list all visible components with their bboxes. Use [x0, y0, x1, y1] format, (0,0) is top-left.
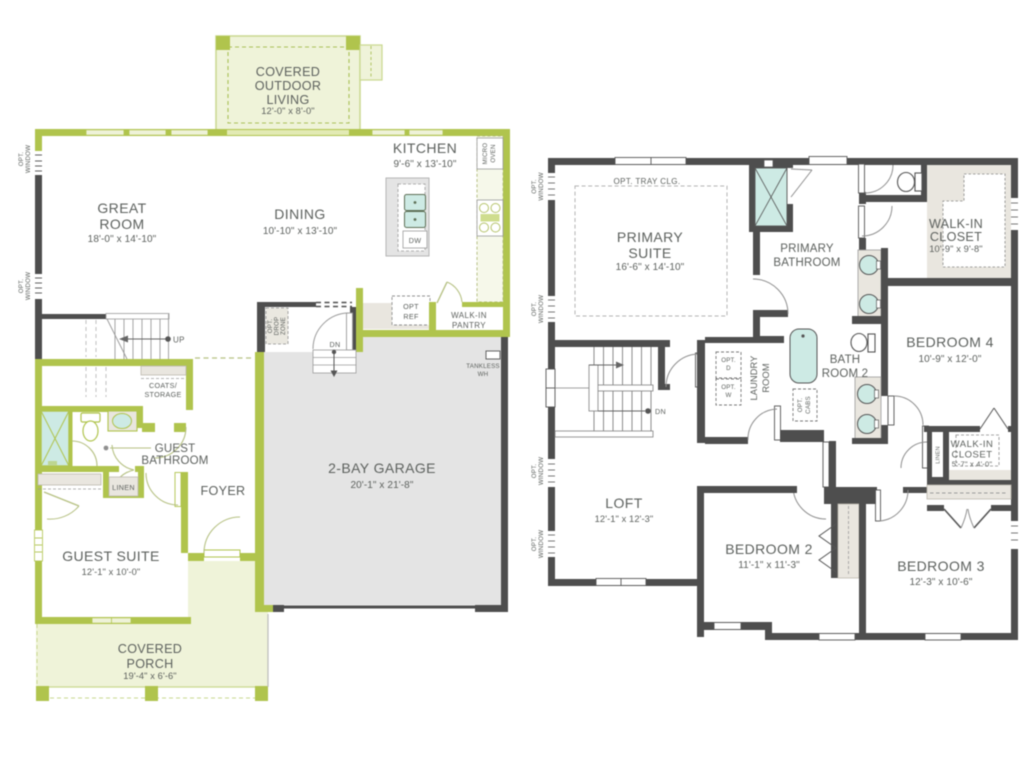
svg-text:OPT.: OPT.: [797, 398, 804, 413]
svg-text:COVERED: COVERED: [118, 642, 182, 656]
svg-text:FOYER: FOYER: [201, 484, 246, 498]
svg-text:COATS/: COATS/: [149, 381, 177, 390]
svg-text:LINEN: LINEN: [112, 483, 135, 492]
svg-text:10'-9" x 9'-8": 10'-9" x 9'-8": [929, 244, 982, 254]
svg-text:OPT.: OPT.: [531, 537, 538, 552]
svg-text:OUTDOOR: OUTDOOR: [255, 79, 321, 93]
svg-text:WINDOW: WINDOW: [538, 530, 545, 558]
svg-text:12'-3" x 10'-6": 12'-3" x 10'-6": [909, 577, 972, 588]
svg-text:W: W: [725, 392, 731, 399]
svg-text:STORAGE: STORAGE: [144, 390, 181, 399]
svg-text:OPT.: OPT.: [531, 179, 538, 194]
svg-text:12'-0" x 8'-0": 12'-0" x 8'-0": [261, 106, 314, 116]
svg-text:12'-1" x 10'-0": 12'-1" x 10'-0": [82, 567, 141, 577]
svg-text:DN: DN: [655, 407, 666, 416]
svg-text:D: D: [726, 365, 731, 372]
svg-text:10'-9" x 12'-0": 10'-9" x 12'-0": [918, 354, 981, 365]
svg-text:OPT.: OPT.: [18, 152, 25, 167]
svg-text:TANKLESS: TANKLESS: [466, 363, 499, 370]
svg-text:LIVING: LIVING: [266, 93, 309, 107]
svg-text:BATH: BATH: [830, 354, 861, 366]
svg-text:OPT.: OPT.: [721, 357, 736, 364]
svg-text:UP: UP: [173, 336, 185, 345]
svg-text:BEDROOM 2: BEDROOM 2: [725, 541, 813, 557]
svg-text:5'-7" x 4'-0": 5'-7" x 4'-0": [952, 460, 993, 469]
svg-text:LINEN: LINEN: [936, 446, 942, 463]
svg-text:SUITE: SUITE: [628, 245, 671, 261]
svg-text:DN: DN: [330, 340, 341, 349]
svg-text:PANTRY: PANTRY: [452, 321, 486, 330]
svg-text:OPT.: OPT.: [531, 302, 538, 317]
svg-text:OPT.: OPT.: [721, 384, 736, 391]
svg-text:BATHROOM: BATHROOM: [773, 257, 840, 269]
svg-text:2-BAY GARAGE: 2-BAY GARAGE: [328, 460, 436, 476]
svg-text:ZONE: ZONE: [280, 317, 287, 335]
svg-text:KITCHEN: KITCHEN: [393, 140, 457, 156]
svg-text:CLOSET: CLOSET: [930, 230, 982, 244]
svg-text:BEDROOM 4: BEDROOM 4: [906, 334, 994, 350]
svg-text:WINDOW: WINDOW: [538, 295, 545, 323]
svg-text:OPT.: OPT.: [531, 464, 538, 479]
svg-text:19'-4" x 6'-6": 19'-4" x 6'-6": [123, 671, 176, 681]
svg-text:COVERED: COVERED: [256, 65, 320, 79]
svg-text:REF: REF: [403, 312, 419, 321]
svg-text:PRIMARY: PRIMARY: [780, 243, 834, 255]
svg-text:WINDOW: WINDOW: [538, 172, 545, 200]
svg-text:ROOM: ROOM: [761, 363, 771, 392]
svg-text:ROOM: ROOM: [99, 216, 144, 232]
svg-text:OPT.: OPT.: [18, 279, 25, 294]
svg-text:DINING: DINING: [274, 206, 325, 222]
svg-text:WH: WH: [478, 371, 489, 378]
svg-text:GREAT: GREAT: [97, 200, 146, 216]
svg-text:9'-6" x 13'-10": 9'-6" x 13'-10": [393, 159, 456, 170]
svg-text:MICRO: MICRO: [482, 143, 489, 165]
svg-text:PORCH: PORCH: [127, 657, 174, 671]
svg-text:PRIMARY: PRIMARY: [617, 229, 684, 245]
svg-text:CABS: CABS: [805, 396, 812, 414]
svg-text:OVEN: OVEN: [490, 144, 497, 162]
svg-text:DW: DW: [409, 236, 422, 245]
svg-text:GUEST: GUEST: [155, 443, 196, 455]
svg-text:12'-1" x 12'-3": 12'-1" x 12'-3": [595, 514, 654, 524]
svg-text:BEDROOM 3: BEDROOM 3: [897, 558, 985, 574]
svg-text:20'-1" x 21'-8": 20'-1" x 21'-8": [350, 480, 413, 491]
svg-text:11'-1" x 11'-3": 11'-1" x 11'-3": [738, 560, 800, 571]
svg-text:18'-0" x 14'-10": 18'-0" x 14'-10": [88, 234, 157, 245]
svg-text:WALK-IN: WALK-IN: [451, 311, 487, 320]
svg-text:WALK-IN: WALK-IN: [929, 217, 983, 231]
svg-text:10'-10" x 13'-10": 10'-10" x 13'-10": [263, 226, 338, 237]
svg-text:OPT. TRAY CLG.: OPT. TRAY CLG.: [614, 177, 681, 186]
svg-text:BATHROOM: BATHROOM: [141, 455, 208, 467]
svg-text:WINDOW: WINDOW: [25, 145, 32, 173]
svg-text:WINDOW: WINDOW: [538, 457, 545, 485]
svg-text:WINDOW: WINDOW: [25, 272, 32, 300]
svg-text:OPT: OPT: [403, 302, 419, 311]
svg-text:LOFT: LOFT: [605, 495, 642, 511]
svg-text:WALK-IN: WALK-IN: [951, 439, 994, 450]
svg-text:GUEST SUITE: GUEST SUITE: [62, 548, 160, 564]
svg-text:LAUNDRY: LAUNDRY: [749, 356, 759, 401]
svg-text:16'-6" x 14'-10": 16'-6" x 14'-10": [616, 262, 685, 273]
svg-text:ROOM 2: ROOM 2: [822, 368, 869, 380]
